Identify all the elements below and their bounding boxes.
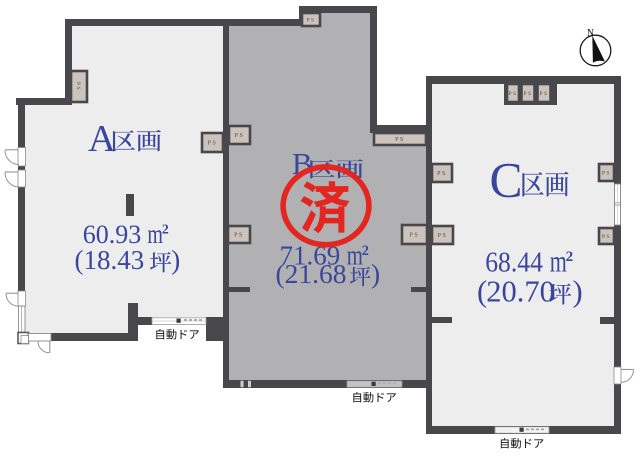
svg-text:PS: PS [523, 91, 532, 97]
svg-text:2: 2 [566, 249, 574, 265]
svg-text:): ) [171, 245, 180, 275]
svg-text:PS: PS [208, 141, 218, 147]
svg-text:(21.68: (21.68 [276, 258, 347, 289]
svg-text:PS: PS [602, 234, 611, 240]
svg-text:N: N [587, 28, 594, 39]
svg-text:(20.70: (20.70 [477, 275, 555, 309]
svg-text:2: 2 [162, 222, 169, 237]
svg-text:PS: PS [539, 91, 548, 97]
svg-text:PS: PS [234, 233, 244, 239]
svg-text:2: 2 [362, 243, 369, 259]
svg-text:PS: PS [306, 17, 315, 23]
svg-text:68.44: 68.44 [485, 246, 543, 278]
svg-text:PS: PS [437, 171, 447, 177]
svg-text:PS: PS [602, 170, 611, 176]
svg-text:C: C [490, 153, 523, 208]
svg-text:PS: PS [235, 133, 245, 139]
svg-text:PS: PS [508, 91, 517, 97]
svg-text:PS: PS [75, 82, 81, 91]
svg-text:): ) [371, 258, 380, 289]
svg-text:PS: PS [438, 233, 448, 239]
svg-text:PS: PS [410, 233, 420, 239]
svg-text:A: A [88, 118, 116, 160]
svg-text:(18.43: (18.43 [75, 245, 145, 275]
svg-text:m: m [550, 244, 567, 278]
svg-text:PS: PS [395, 137, 405, 143]
svg-text:): ) [573, 275, 583, 309]
svg-text:m: m [147, 219, 163, 250]
